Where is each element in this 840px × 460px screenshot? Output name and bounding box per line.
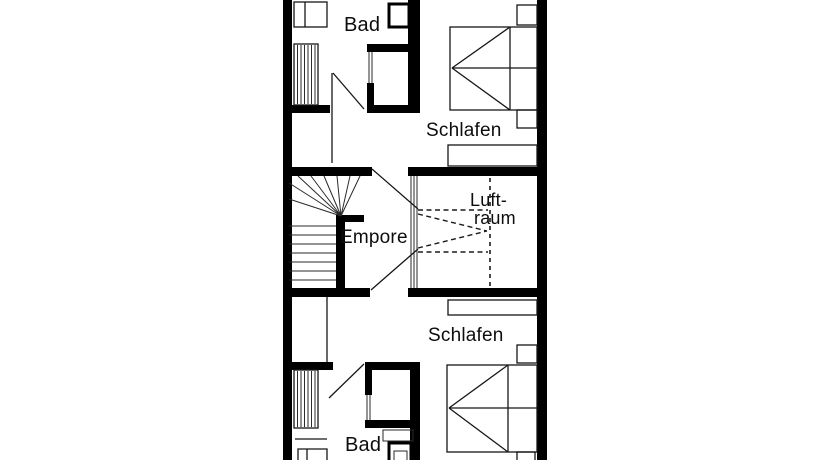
middle-section xyxy=(289,167,545,297)
bed-duvet-line xyxy=(452,68,510,110)
left-exterior-wall xyxy=(283,0,292,460)
room-label-luftraum: Luft- raum xyxy=(470,191,516,227)
bathroom-bottom-north-wall xyxy=(289,362,333,370)
shower-wall xyxy=(365,420,410,428)
radiator-top xyxy=(294,44,318,105)
room-label-schlafen-bottom: Schlafen xyxy=(428,325,504,347)
radiator-fins xyxy=(298,45,316,104)
shower-wall xyxy=(365,362,372,395)
room-label-schlafen-top: Schlafen xyxy=(426,120,502,142)
washbasin-outline xyxy=(298,449,327,460)
empore-south-wall xyxy=(289,288,370,297)
nightstand xyxy=(517,345,537,363)
luftraum-south-wall xyxy=(408,288,545,297)
right-exterior-wall xyxy=(537,0,547,460)
room-label-bad-top: Bad xyxy=(344,14,380,37)
door-swing xyxy=(333,73,364,109)
shower-wall xyxy=(367,83,374,113)
wc-top xyxy=(389,4,409,27)
door-swing xyxy=(329,364,364,398)
bed-duvet-line xyxy=(452,27,510,68)
floorplan-drawing xyxy=(0,0,840,460)
shower-top xyxy=(367,44,408,113)
empore-north-wall xyxy=(289,167,372,176)
bed-duvet-line xyxy=(449,365,508,408)
stair-winder-treads xyxy=(289,176,360,216)
luftraum-label-line1: Luft- xyxy=(470,190,507,210)
wardrobe-top xyxy=(448,145,537,166)
bed-duvet-line xyxy=(449,408,508,452)
luftraum-north-wall xyxy=(408,167,545,176)
floorplan-page: Bad Schlafen Empore Luft- raum Schlafen … xyxy=(0,0,840,460)
room-label-bad-bottom: Bad xyxy=(345,434,381,457)
radiator-fins xyxy=(298,371,316,427)
washbasin-outline xyxy=(294,2,327,27)
washbasin-bottom xyxy=(295,439,327,460)
stair-newel-wall-stub xyxy=(345,215,364,222)
bedroom-bottom xyxy=(447,300,537,460)
shower-wall xyxy=(367,44,408,52)
bathroom-top-door xyxy=(332,73,364,163)
room-label-empore: Empore xyxy=(340,227,408,249)
nightstand xyxy=(517,5,537,25)
wardrobe-bottom xyxy=(448,300,537,315)
bed-bottom xyxy=(447,365,537,452)
nightstand xyxy=(517,452,535,460)
wc-cistern xyxy=(383,430,413,441)
luftraum-label-line2: raum xyxy=(470,209,516,227)
radiator-bottom xyxy=(294,370,318,428)
void-dashed-line xyxy=(418,231,487,248)
bed-top xyxy=(450,27,537,110)
nightstand xyxy=(517,110,537,128)
bathroom-top-south-wall xyxy=(289,105,330,113)
stair-straight-treads xyxy=(289,226,336,280)
washbasin-top xyxy=(294,2,327,27)
